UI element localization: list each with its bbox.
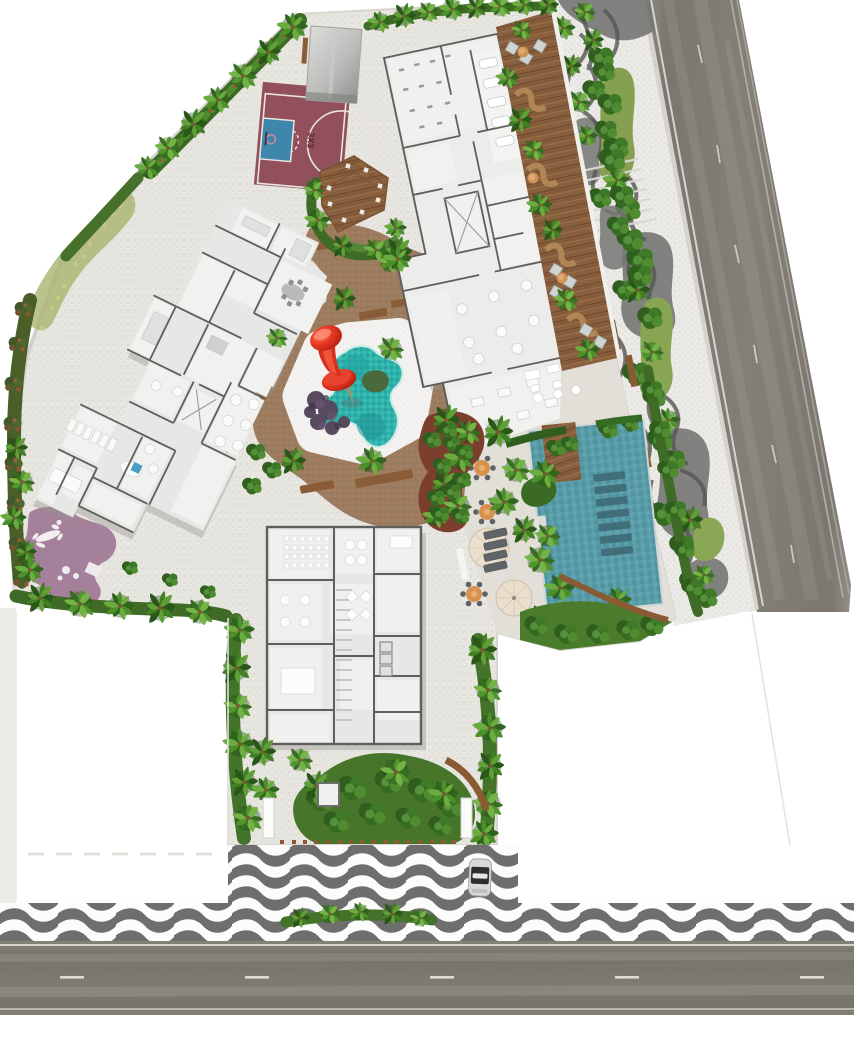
svg-text:3X3: 3X3 xyxy=(305,132,316,149)
